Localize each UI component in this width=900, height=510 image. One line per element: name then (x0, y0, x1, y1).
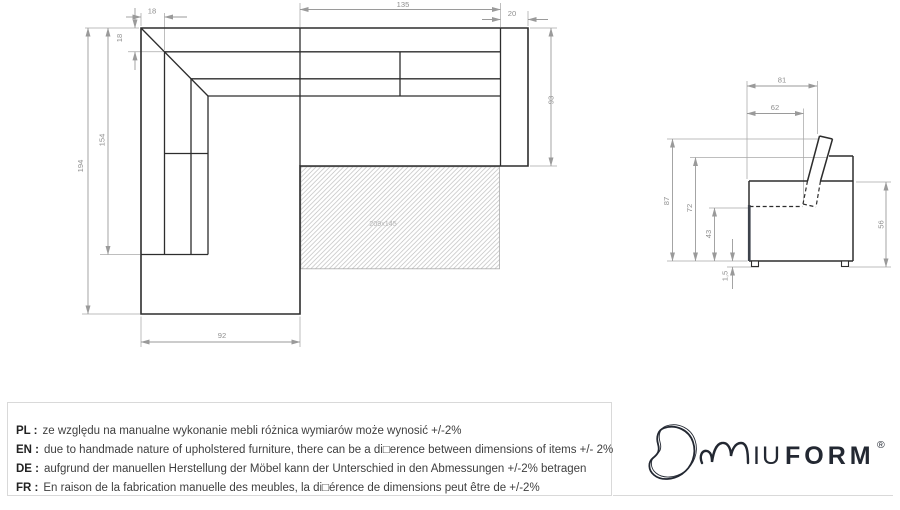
dim-label-seat-depth: 62 (771, 103, 779, 112)
miuform-logo: IU FORM ® (640, 418, 896, 490)
plan-view: 18 135 20 18 154 194 93 92 209x145 (76, 0, 557, 347)
dim-label-back-thickness-left: 18 (115, 34, 124, 42)
note-fr-lang: FR : (16, 482, 38, 494)
dim-label-seat-height: 43 (704, 230, 713, 238)
note-de: DE :aufgrund der manuellen Herstellung d… (16, 460, 611, 479)
dim-label-left-section-length: 154 (98, 134, 107, 147)
dim-label-backrest-height: 72 (685, 204, 694, 212)
sleeping-area-hatch (301, 167, 500, 269)
logo-bean-icon (649, 425, 696, 479)
sleeping-area-label: 209x145 (369, 219, 397, 228)
note-en: EN :due to handmade nature of upholstere… (16, 441, 611, 460)
dim-label-side-height: 56 (877, 220, 886, 228)
logo-registered-mark: ® (877, 439, 885, 451)
note-pl-text: ze względu na manualne wykonanie mebli r… (43, 425, 462, 437)
note-en-lang: EN : (16, 444, 39, 456)
dim-label-total-height: 87 (662, 197, 671, 205)
dim-label-leg-height: 1,5 (721, 271, 730, 282)
dim-label-seat-width: 135 (397, 0, 410, 9)
dim-label-right-section-depth: 93 (547, 96, 556, 104)
side-sofa-outline (749, 136, 853, 261)
note-pl: PL :ze względu na manualne wykonanie meb… (16, 422, 611, 441)
note-de-lang: DE : (16, 463, 39, 475)
side-dimension-lines (673, 86, 887, 289)
dim-label-chaise-width: 92 (218, 331, 226, 340)
dim-label-back-thickness-top: 18 (148, 7, 156, 16)
tolerance-notes: PL :ze względu na manualne wykonanie meb… (7, 402, 612, 496)
side-view: 81 62 87 72 43 1,5 56 (662, 76, 891, 290)
bottom-divider (613, 495, 893, 496)
note-pl-lang: PL : (16, 425, 38, 437)
dim-label-total-depth: 81 (778, 76, 786, 85)
note-en-text: due to handmade nature of upholstered fu… (44, 444, 613, 456)
sofa-feet (752, 261, 849, 267)
note-fr: FR :En raison de la fabrication manuelle… (16, 479, 611, 498)
side-dark-edge (748, 205, 751, 261)
logo-text-form: FORM (785, 442, 875, 470)
dim-label-armrest-width: 20 (508, 9, 516, 18)
logo-m-glyph (701, 443, 748, 463)
technical-drawing: 18 135 20 18 154 194 93 92 209x145 (0, 0, 900, 420)
dim-label-total-length: 194 (76, 160, 85, 173)
note-de-text: aufgrund der manuellen Herstellung der M… (44, 463, 586, 475)
note-fr-text: En raison de la fabrication manuelle des… (43, 482, 539, 494)
logo-text-iu: IU (753, 442, 782, 470)
